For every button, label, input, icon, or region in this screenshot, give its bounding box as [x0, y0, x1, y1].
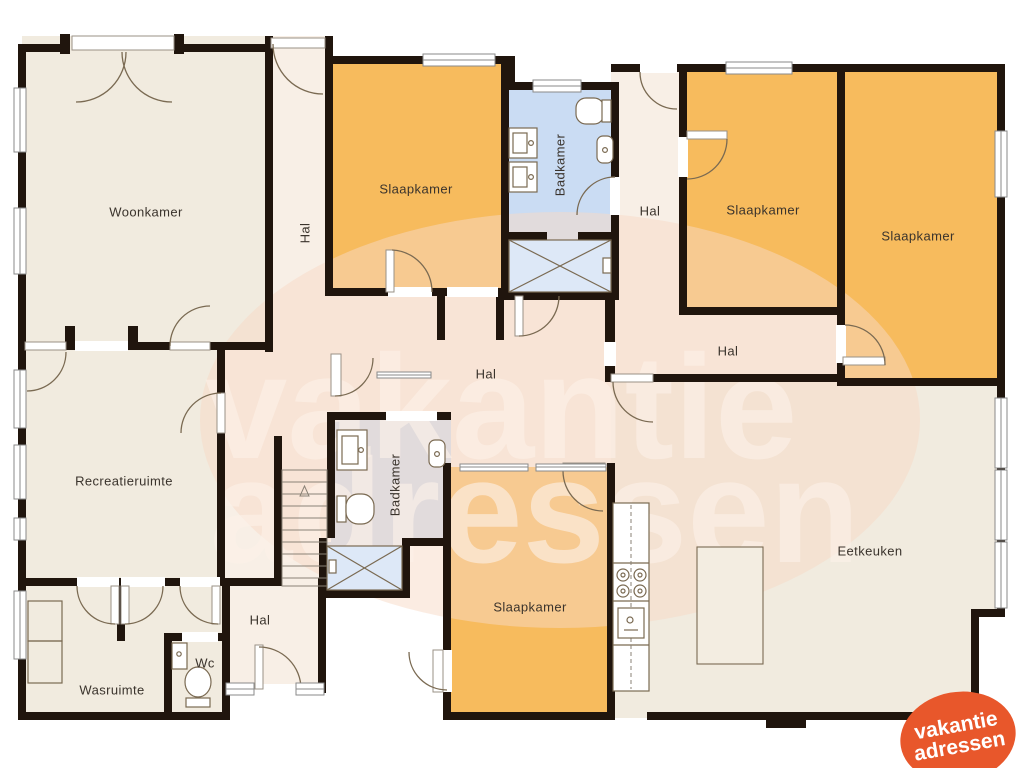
- floorplan-page: vakantie adressen: [0, 0, 1024, 768]
- room-label-woonkamer: Woonkamer: [109, 205, 182, 220]
- room-label-hal-topright: Hal: [640, 204, 661, 219]
- sink-icon: [509, 162, 537, 192]
- toilet-icon: [576, 98, 611, 124]
- room-label-slaapkamer-4: Slaapkamer: [493, 600, 566, 615]
- shower-icon: [327, 546, 402, 590]
- sink-icon: [172, 643, 187, 669]
- shower-icon: [509, 240, 611, 292]
- room-label-recreatieruimte: Recreatieruimte: [75, 474, 173, 489]
- room-label-badkamer-1: Badkamer: [553, 134, 568, 196]
- room-label-slaapkamer-2: Slaapkamer: [726, 203, 799, 218]
- bidet-icon: [597, 136, 613, 163]
- sink-icon: [337, 430, 367, 470]
- bidet-icon: [429, 440, 445, 467]
- kitchen-island: [697, 547, 763, 664]
- room-label-wasruimte: Wasruimte: [79, 683, 144, 698]
- room-label-badkamer-2: Badkamer: [388, 454, 403, 516]
- room-label-wc: Wc: [195, 656, 215, 671]
- room-label-hal-central: Hal: [476, 367, 497, 382]
- kitchen-counter: [613, 503, 649, 691]
- sink-icon: [509, 128, 537, 158]
- room-label-hal-corridor: Hal: [298, 223, 313, 244]
- kitchen-sink-icon: [618, 608, 644, 638]
- room-label-hal-midright: Hal: [718, 344, 739, 359]
- room-label-slaapkamer-3: Slaapkamer: [881, 229, 954, 244]
- room-label-hal-bottom: Hal: [250, 613, 271, 628]
- room-label-eetkeuken: Eetkeuken: [837, 544, 902, 559]
- toilet-icon: [337, 494, 374, 524]
- toilet-icon: [185, 667, 211, 707]
- floorplan-canvas: vakantie adressen: [0, 0, 1024, 768]
- room-label-slaapkamer-1: Slaapkamer: [379, 182, 452, 197]
